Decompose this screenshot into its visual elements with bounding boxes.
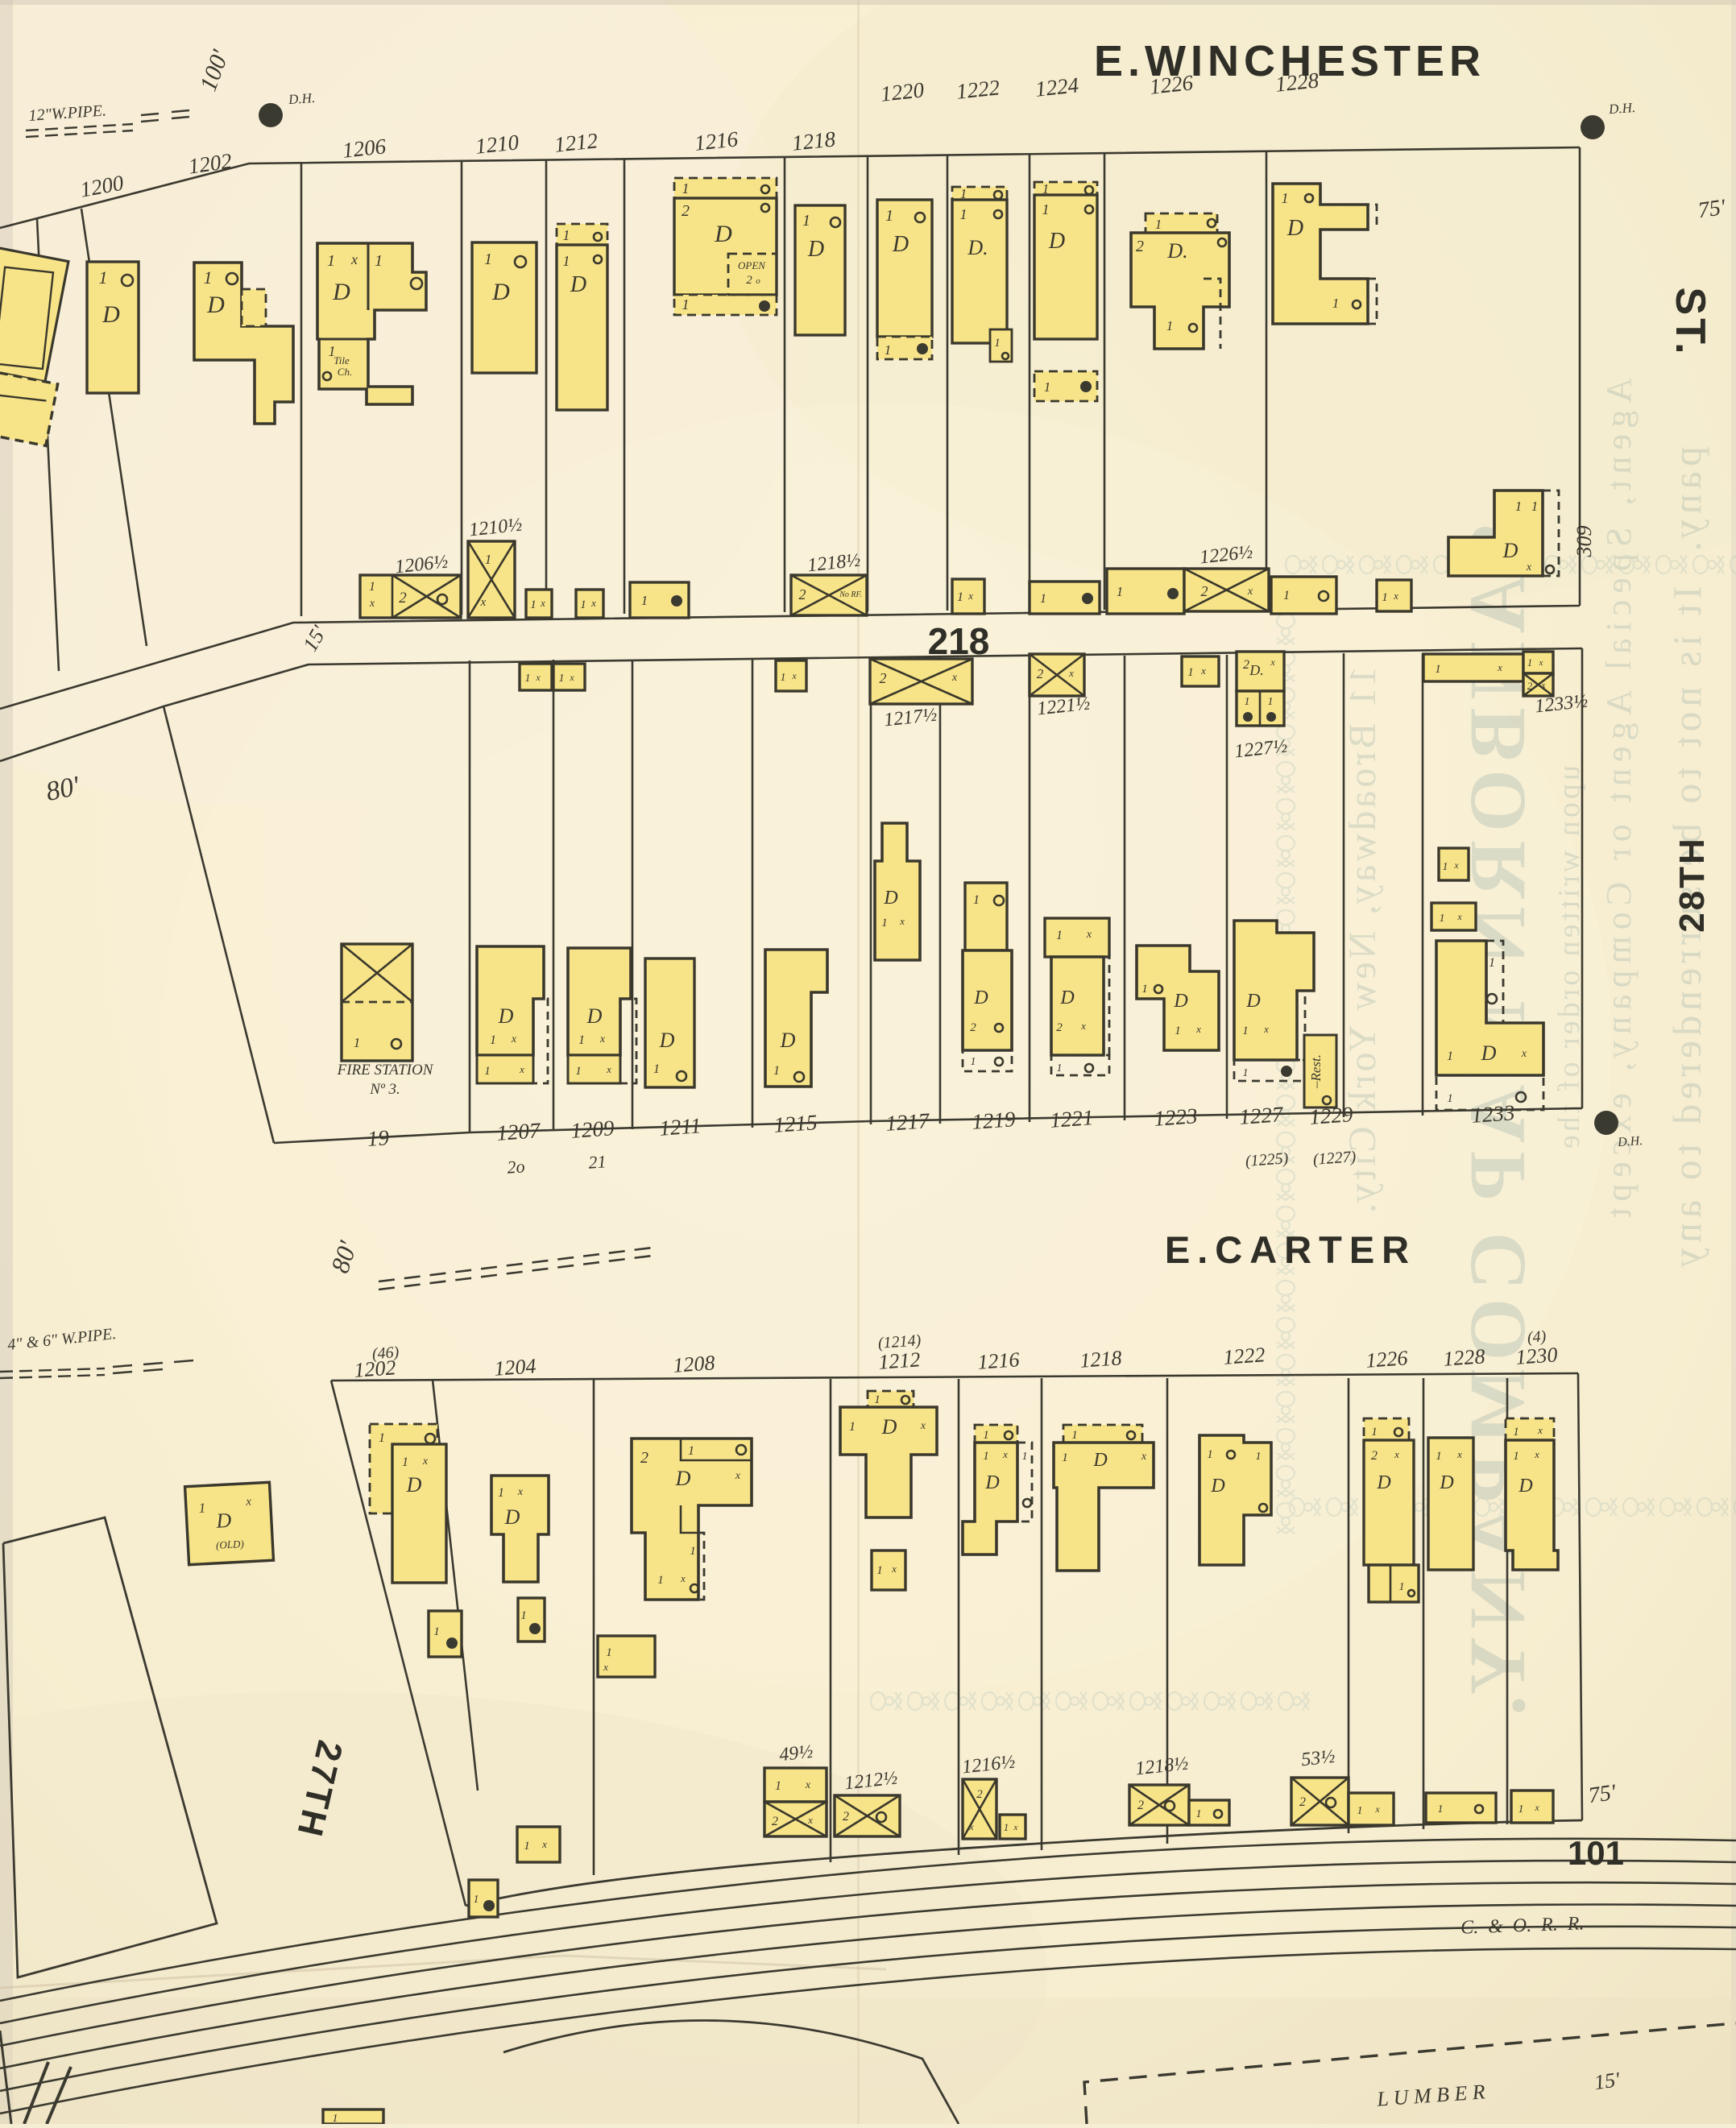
svg-text:1: 1 <box>802 212 810 230</box>
svg-text:x: x <box>603 1661 608 1673</box>
svg-text:1220: 1220 <box>880 77 926 106</box>
svg-text:1226: 1226 <box>1149 70 1195 99</box>
svg-text:2: 2 <box>976 1788 983 1801</box>
svg-text:x: x <box>735 1470 741 1482</box>
svg-text:D: D <box>675 1467 691 1490</box>
svg-text:D: D <box>714 221 732 247</box>
svg-text:1: 1 <box>1518 1803 1524 1815</box>
svg-text:D: D <box>807 237 824 262</box>
svg-text:D: D <box>1481 1041 1497 1065</box>
svg-text:D.H.: D.H. <box>1617 1134 1643 1149</box>
svg-text:D: D <box>586 1004 603 1028</box>
svg-text:2: 2 <box>1527 680 1533 692</box>
svg-text:1: 1 <box>983 1450 989 1463</box>
svg-text:2: 2 <box>682 202 690 220</box>
svg-text:(OLD): (OLD) <box>216 1538 244 1551</box>
svg-text:1: 1 <box>1332 296 1340 311</box>
svg-text:D: D <box>1210 1476 1224 1497</box>
svg-text:x: x <box>1539 658 1543 668</box>
svg-text:1: 1 <box>1242 1025 1249 1037</box>
svg-text:53½: 53½ <box>1300 1746 1336 1770</box>
svg-text:2: 2 <box>799 586 806 602</box>
svg-text:2: 2 <box>880 670 887 686</box>
svg-text:x: x <box>1195 1023 1201 1035</box>
svg-text:1: 1 <box>885 342 892 358</box>
svg-text:x: x <box>1141 1451 1147 1463</box>
svg-text:D: D <box>1048 229 1065 254</box>
svg-text:2: 2 <box>772 1815 778 1828</box>
svg-text:x: x <box>1086 929 1092 941</box>
svg-text:o: o <box>756 276 760 286</box>
svg-text:(1225): (1225) <box>1245 1149 1289 1170</box>
svg-text:x: x <box>920 1420 926 1432</box>
svg-text:1: 1 <box>876 1564 883 1577</box>
svg-text:–Rest.: –Rest. <box>1308 1054 1324 1089</box>
svg-text:1: 1 <box>1447 1092 1453 1105</box>
svg-text:D: D <box>881 1415 897 1439</box>
svg-text:2: 2 <box>1136 238 1144 255</box>
svg-text:1210: 1210 <box>474 130 520 159</box>
svg-text:1: 1 <box>657 1574 664 1587</box>
svg-text:D: D <box>1518 1476 1532 1497</box>
svg-text:1207: 1207 <box>495 1118 541 1145</box>
svg-text:19: 19 <box>367 1125 391 1151</box>
svg-text:x: x <box>968 1821 974 1832</box>
svg-text:1211: 1211 <box>658 1113 702 1141</box>
svg-text:1: 1 <box>994 337 1001 350</box>
svg-text:1: 1 <box>983 1429 989 1442</box>
svg-text:(4): (4) <box>1527 1327 1547 1347</box>
svg-text:1: 1 <box>1436 1450 1442 1463</box>
svg-text:1: 1 <box>1515 499 1523 514</box>
svg-text:FIRE STATION: FIRE STATION <box>337 1062 434 1078</box>
svg-text:D: D <box>1439 1472 1453 1493</box>
svg-text:x: x <box>680 1572 686 1584</box>
svg-text:x: x <box>807 1814 813 1826</box>
svg-text:1: 1 <box>1040 592 1046 606</box>
svg-text:1229: 1229 <box>1308 1102 1353 1129</box>
svg-text:x: x <box>1247 586 1253 598</box>
svg-text:x: x <box>1456 911 1462 922</box>
svg-text:1224: 1224 <box>1034 72 1080 101</box>
svg-text:1: 1 <box>327 252 335 270</box>
svg-text:D.H.: D.H. <box>1607 100 1635 117</box>
svg-text:1: 1 <box>1447 1050 1453 1063</box>
svg-text:1227: 1227 <box>1238 1102 1284 1129</box>
svg-text:1: 1 <box>1438 1803 1444 1815</box>
svg-text:2: 2 <box>1299 1795 1306 1809</box>
svg-text:1: 1 <box>99 267 108 288</box>
svg-text:x: x <box>1263 1023 1269 1035</box>
svg-text:ST.: ST. <box>1667 287 1713 357</box>
svg-text:1: 1 <box>1044 379 1051 395</box>
svg-text:x: x <box>1534 1802 1539 1813</box>
svg-text:1: 1 <box>575 1065 582 1078</box>
svg-text:D: D <box>659 1029 675 1052</box>
svg-text:1208: 1208 <box>672 1351 715 1377</box>
svg-text:1: 1 <box>1141 983 1148 996</box>
svg-text:D: D <box>1173 991 1187 1012</box>
svg-text:Ch.: Ch. <box>338 366 352 378</box>
svg-text:1: 1 <box>1513 1426 1519 1439</box>
svg-text:x: x <box>1002 1448 1008 1460</box>
svg-text:1: 1 <box>1440 913 1445 925</box>
svg-text:x: x <box>1393 590 1398 602</box>
svg-text:x: x <box>899 915 905 927</box>
svg-text:2o: 2o <box>507 1156 526 1177</box>
svg-text:1: 1 <box>369 580 375 594</box>
svg-text:x: x <box>1456 1448 1462 1460</box>
svg-text:1219: 1219 <box>971 1107 1016 1134</box>
svg-text:1226: 1226 <box>1365 1346 1408 1372</box>
svg-text:1: 1 <box>1042 181 1050 197</box>
svg-text:1: 1 <box>1382 591 1388 604</box>
svg-text:D: D <box>883 888 897 909</box>
svg-text:D.H.: D.H. <box>287 90 315 107</box>
svg-text:x: x <box>1453 859 1459 871</box>
svg-text:D.: D. <box>967 236 988 259</box>
svg-text:1: 1 <box>525 673 531 685</box>
svg-text:D: D <box>892 232 909 257</box>
svg-text:D: D <box>1502 539 1518 562</box>
svg-text:1216: 1216 <box>694 126 740 155</box>
svg-text:1: 1 <box>1166 318 1174 333</box>
svg-text:1: 1 <box>957 590 963 604</box>
svg-text:E.CARTER: E.CARTER <box>1165 1228 1416 1271</box>
svg-text:x: x <box>1270 656 1275 668</box>
svg-text:1221: 1221 <box>1049 1105 1094 1132</box>
svg-text:x: x <box>535 672 541 683</box>
svg-text:x: x <box>1200 664 1206 677</box>
svg-text:1: 1 <box>682 296 690 313</box>
svg-text:Nº 3.: Nº 3. <box>369 1081 400 1098</box>
svg-text:1: 1 <box>354 1035 361 1050</box>
svg-text:x: x <box>891 1563 897 1575</box>
svg-text:x: x <box>590 597 596 609</box>
svg-text:49½: 49½ <box>778 1741 814 1766</box>
svg-text:11 Broadway, New York City.: 11 Broadway, New York City. <box>1341 666 1384 1216</box>
svg-text:1: 1 <box>1282 190 1289 206</box>
svg-text:x: x <box>422 1455 429 1468</box>
svg-text:1216: 1216 <box>976 1348 1020 1374</box>
svg-text:D: D <box>1376 1472 1390 1493</box>
svg-text:x: x <box>606 1063 611 1075</box>
svg-text:218: 218 <box>928 620 990 662</box>
svg-text:1: 1 <box>1196 1808 1202 1820</box>
svg-text:D: D <box>498 1004 514 1028</box>
svg-text:x: x <box>245 1495 252 1508</box>
svg-text:x: x <box>599 1033 606 1045</box>
svg-text:1: 1 <box>1243 1067 1249 1079</box>
svg-text:1: 1 <box>1175 1025 1181 1037</box>
svg-text:1: 1 <box>1283 589 1290 602</box>
svg-text:1: 1 <box>688 1444 694 1458</box>
svg-text:x: x <box>369 598 375 610</box>
svg-text:x: x <box>1521 1048 1527 1060</box>
svg-text:1: 1 <box>971 1056 976 1068</box>
svg-text:1: 1 <box>849 1420 856 1434</box>
svg-text:(1227): (1227) <box>1312 1148 1357 1169</box>
svg-text:1: 1 <box>485 552 492 567</box>
svg-text:1: 1 <box>1004 1821 1009 1833</box>
svg-text:x: x <box>1068 667 1074 679</box>
svg-text:(1214): (1214) <box>877 1331 922 1352</box>
svg-text:1: 1 <box>781 672 786 684</box>
svg-text:1228: 1228 <box>1274 68 1320 97</box>
svg-text:1: 1 <box>1057 1062 1063 1074</box>
svg-text:1: 1 <box>960 206 967 222</box>
svg-text:1: 1 <box>433 1625 440 1638</box>
svg-text:1215: 1215 <box>773 1110 818 1137</box>
svg-text:1: 1 <box>402 1455 408 1469</box>
svg-text:1: 1 <box>881 917 888 929</box>
svg-text:D: D <box>1286 216 1303 241</box>
svg-text:1: 1 <box>641 593 648 608</box>
svg-text:1: 1 <box>1062 1451 1068 1464</box>
svg-text:x: x <box>569 672 574 683</box>
svg-text:1: 1 <box>885 207 893 225</box>
svg-text:1: 1 <box>1527 656 1533 669</box>
svg-text:D: D <box>780 1029 796 1052</box>
svg-text:1: 1 <box>1022 1451 1028 1463</box>
svg-text:x: x <box>519 1063 524 1075</box>
svg-text:1204: 1204 <box>493 1354 537 1381</box>
svg-text:1: 1 <box>1443 861 1448 873</box>
svg-text:x: x <box>1013 1823 1018 1832</box>
svg-text:x: x <box>1080 1020 1086 1032</box>
svg-text:1209: 1209 <box>570 1116 615 1143</box>
svg-text:2: 2 <box>1056 1021 1063 1034</box>
svg-text:Agent, Special Agent or Compan: Agent, Special Agent or Company, except <box>1599 378 1639 1224</box>
svg-text:1: 1 <box>204 267 213 288</box>
svg-text:x: x <box>1374 1803 1380 1815</box>
svg-text:x: x <box>951 672 958 684</box>
svg-text:x: x <box>541 1838 547 1850</box>
svg-text:1: 1 <box>1435 663 1441 676</box>
svg-text:D.: D. <box>1166 239 1187 263</box>
svg-text:D: D <box>332 279 350 305</box>
svg-text:1: 1 <box>1357 1805 1363 1817</box>
svg-text:1: 1 <box>973 893 980 907</box>
svg-text:15': 15' <box>1593 2068 1622 2094</box>
svg-text:1: 1 <box>484 1065 491 1078</box>
svg-text:2: 2 <box>399 590 407 607</box>
svg-text:1: 1 <box>375 252 383 270</box>
svg-text:x: x <box>805 1779 811 1791</box>
svg-text:x: x <box>791 670 797 681</box>
svg-text:1: 1 <box>653 1062 660 1076</box>
svg-text:1228: 1228 <box>1442 1344 1485 1371</box>
svg-text:1212: 1212 <box>553 128 599 156</box>
svg-text:2: 2 <box>746 274 752 287</box>
svg-text:1: 1 <box>960 186 967 201</box>
svg-text:2: 2 <box>640 1449 648 1467</box>
svg-text:1: 1 <box>690 1545 696 1558</box>
svg-text:OPEN: OPEN <box>738 259 766 271</box>
svg-text:1: 1 <box>563 253 570 269</box>
svg-text:x: x <box>1394 1448 1399 1460</box>
svg-text:1222: 1222 <box>1222 1343 1266 1369</box>
svg-text:D: D <box>973 987 988 1008</box>
svg-text:1: 1 <box>1071 1429 1078 1442</box>
svg-text:1222: 1222 <box>955 75 1001 103</box>
svg-text:x: x <box>1541 681 1546 690</box>
svg-text:1: 1 <box>1399 1581 1405 1593</box>
svg-text:1: 1 <box>498 1486 504 1500</box>
svg-text:1230: 1230 <box>1514 1343 1558 1369</box>
svg-text:1223: 1223 <box>1153 1103 1198 1131</box>
svg-text:2: 2 <box>970 1021 976 1034</box>
svg-text:2: 2 <box>1037 666 1044 681</box>
svg-text:D.: D. <box>1249 662 1264 678</box>
svg-text:1: 1 <box>563 227 570 243</box>
svg-text:1: 1 <box>773 1064 780 1078</box>
svg-text:x: x <box>1497 661 1502 673</box>
svg-text:1233: 1233 <box>1470 1100 1515 1128</box>
svg-text:1: 1 <box>1371 1426 1378 1439</box>
svg-text:2: 2 <box>843 1810 849 1824</box>
svg-text:x: x <box>540 597 545 609</box>
svg-text:2: 2 <box>1243 658 1249 672</box>
svg-text:2: 2 <box>1371 1449 1378 1463</box>
svg-text:D: D <box>1059 987 1074 1008</box>
svg-text:1: 1 <box>490 1033 496 1047</box>
svg-text:1: 1 <box>1042 201 1050 217</box>
svg-text:1: 1 <box>1117 584 1124 599</box>
svg-text:1: 1 <box>1489 956 1495 970</box>
svg-text:1218: 1218 <box>791 126 837 155</box>
svg-text:1217: 1217 <box>885 1108 930 1136</box>
svg-text:28TH: 28TH <box>1672 836 1712 933</box>
svg-text:1: 1 <box>1256 1451 1262 1463</box>
svg-text:21: 21 <box>588 1151 607 1172</box>
svg-text:1206: 1206 <box>342 134 387 163</box>
svg-text:D: D <box>491 279 510 305</box>
svg-text:1: 1 <box>682 180 690 197</box>
svg-text:x: x <box>517 1486 524 1498</box>
svg-text:D: D <box>1092 1450 1107 1471</box>
svg-text:1: 1 <box>1531 499 1539 514</box>
svg-text:1: 1 <box>379 1431 385 1445</box>
svg-text:x: x <box>1537 1424 1543 1436</box>
svg-text:1: 1 <box>198 1500 205 1515</box>
svg-text:x: x <box>1534 1448 1539 1460</box>
svg-text:1: 1 <box>606 1646 612 1659</box>
svg-text:C. & O. R. R.: C. & O. R. R. <box>1460 1913 1585 1938</box>
svg-text:D: D <box>984 1472 999 1493</box>
svg-text:2: 2 <box>1201 583 1208 599</box>
svg-text:No RF.: No RF. <box>839 590 862 599</box>
svg-text:1: 1 <box>559 673 565 685</box>
svg-text:1: 1 <box>580 598 586 611</box>
svg-text:D: D <box>1245 991 1260 1012</box>
svg-text:x: x <box>350 251 358 267</box>
svg-text:75': 75' <box>1697 195 1728 224</box>
svg-text:1: 1 <box>530 598 537 611</box>
svg-text:1218: 1218 <box>1079 1346 1122 1372</box>
svg-text:Tile: Tile <box>334 354 350 366</box>
svg-text:2: 2 <box>1137 1799 1144 1812</box>
svg-text:1: 1 <box>1187 666 1194 679</box>
svg-text:D: D <box>102 301 120 328</box>
svg-text:1: 1 <box>524 1840 530 1853</box>
svg-text:1: 1 <box>1155 217 1162 232</box>
svg-text:x: x <box>967 590 973 602</box>
svg-text:1: 1 <box>333 2113 338 2124</box>
svg-text:1: 1 <box>1513 1450 1519 1463</box>
svg-text:D: D <box>206 292 225 318</box>
svg-text:D: D <box>570 272 586 297</box>
svg-text:75': 75' <box>1587 1780 1618 1809</box>
svg-text:1: 1 <box>484 250 492 268</box>
svg-text:D: D <box>406 1473 422 1497</box>
svg-text:309: 309 <box>1572 526 1596 558</box>
svg-text:1: 1 <box>520 1609 527 1622</box>
svg-text:1: 1 <box>578 1033 585 1047</box>
svg-text:x: x <box>1526 561 1532 573</box>
svg-text:x: x <box>480 596 487 609</box>
svg-text:x: x <box>511 1033 517 1045</box>
svg-text:1: 1 <box>1268 696 1274 708</box>
svg-text:1202: 1202 <box>353 1356 396 1382</box>
svg-text:1: 1 <box>1207 1448 1213 1461</box>
svg-text:1: 1 <box>474 1894 479 1906</box>
svg-text:1: 1 <box>1245 696 1250 708</box>
svg-text:1: 1 <box>775 1779 781 1793</box>
svg-text:D: D <box>215 1509 232 1533</box>
svg-text:D: D <box>504 1505 520 1529</box>
svg-text:1: 1 <box>1056 929 1063 942</box>
svg-text:101: 101 <box>1568 1834 1624 1872</box>
svg-text:1: 1 <box>874 1393 880 1406</box>
